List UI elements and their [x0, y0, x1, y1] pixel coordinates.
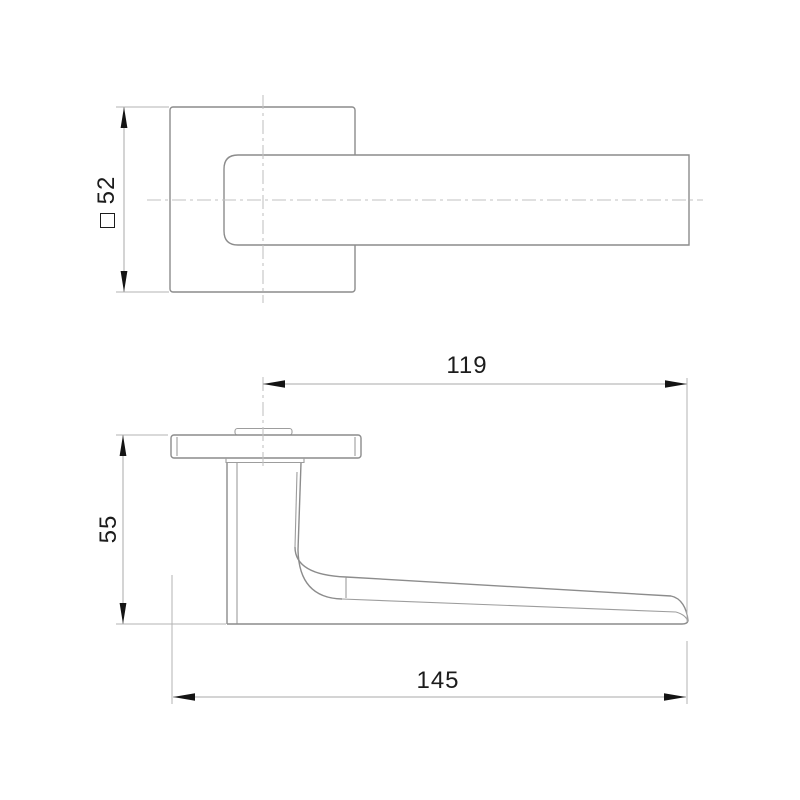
arrowhead-left	[173, 693, 195, 700]
dimension-value: 55	[95, 515, 123, 544]
side-view	[171, 377, 688, 624]
arrowhead-left	[263, 380, 285, 387]
neck-right-edge	[298, 463, 301, 550]
arrowhead-right	[665, 380, 687, 387]
neck-curve-outer	[298, 550, 342, 599]
neck-right-inner-edge	[295, 472, 297, 547]
rosette-side-outline	[171, 435, 361, 458]
arrowhead-right	[664, 693, 686, 700]
arrowhead-down	[121, 271, 128, 292]
arrowhead-up	[121, 107, 128, 128]
grip-mid-edge	[342, 599, 676, 612]
dimension-lever-reach	[263, 378, 687, 704]
dimension-label-overall-length: 145	[368, 667, 508, 695]
dimension-label-handle-height: 55	[95, 459, 123, 599]
dimension-label-rosette-size: 52	[93, 132, 121, 272]
technical-drawing-page: 52 55 119 145	[0, 0, 800, 800]
front-view	[147, 95, 703, 303]
grip-tip-mid-curve	[676, 612, 688, 621]
dimension-value: 52	[93, 176, 121, 205]
dimension-value: 145	[416, 667, 459, 695]
dimension-label-lever-reach: 119	[397, 352, 537, 380]
dimension-rosette-size	[116, 107, 169, 292]
neck-curve-inner	[295, 547, 346, 577]
arrowhead-up	[120, 435, 127, 456]
square-symbol-icon	[100, 213, 115, 228]
dimension-handle-height	[116, 435, 226, 624]
dimension-value: 119	[446, 352, 487, 380]
arrowhead-down	[120, 603, 127, 624]
grip-top-edge	[346, 577, 671, 596]
